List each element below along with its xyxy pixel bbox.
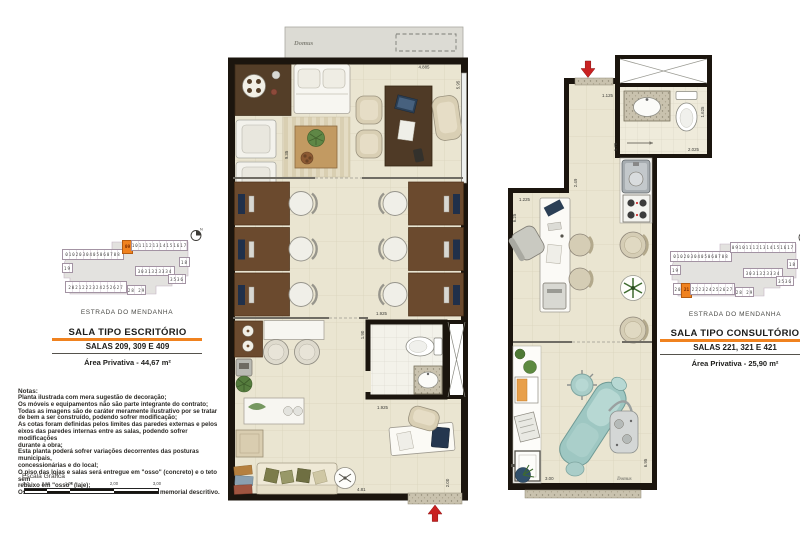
scale-tick-labels: 0,0 0,50 1,00 2,00 3,00 bbox=[24, 481, 159, 486]
armchair bbox=[236, 120, 276, 158]
title-accent-bar bbox=[660, 339, 800, 342]
brand-logo: Domus bbox=[616, 477, 632, 482]
guest-chair bbox=[356, 96, 382, 124]
dim-right-depth: 6.95 bbox=[643, 458, 648, 467]
kitchenette bbox=[620, 158, 652, 223]
magazine-stack bbox=[234, 465, 254, 494]
brochure-page: N 0102030405060708 09 1011121314151617 1… bbox=[0, 0, 800, 538]
window bbox=[462, 73, 467, 183]
dim-left-depth: 9.35 bbox=[284, 150, 289, 159]
entry-arrow-icon bbox=[581, 61, 595, 78]
lounge-sofa bbox=[294, 65, 350, 114]
waiting-armchair bbox=[620, 232, 647, 258]
scale-row-bottom bbox=[25, 491, 158, 493]
round-table bbox=[295, 340, 320, 365]
dim-corridor-depth2: 2.49 bbox=[573, 178, 578, 187]
keyplan-units-28-29: 28 29 bbox=[127, 285, 146, 295]
dim-mid-opening: 1.925 bbox=[376, 311, 388, 316]
scale-tick: 0,0 bbox=[23, 481, 29, 486]
keyplan-consultorio: N 0102030405060708 091011121314151617 18… bbox=[668, 240, 798, 302]
dim-right-depth: 5.95 bbox=[456, 80, 461, 89]
scale-tick: 2,00 bbox=[110, 481, 118, 486]
shelf-cabinet bbox=[515, 377, 538, 403]
north-label: N bbox=[200, 228, 203, 232]
scale-tick: 3,00 bbox=[153, 481, 161, 486]
entry-arrow-icon bbox=[428, 505, 442, 522]
keyplan-units-35-36: 3536 bbox=[168, 274, 186, 284]
toilet bbox=[406, 337, 442, 356]
console-counter bbox=[244, 398, 304, 424]
keyplan-units-35-36: 3536 bbox=[776, 276, 794, 286]
round-table bbox=[264, 340, 289, 365]
guest-chair bbox=[356, 130, 382, 158]
wc-door-opening bbox=[364, 371, 371, 392]
keyplan-escritorio: N 0102030405060708 09 1011121314151617 1… bbox=[60, 238, 190, 300]
plan-subtitle-consultorio: SALAS 221, 321 E 421 bbox=[640, 343, 800, 352]
shaft bbox=[620, 59, 707, 83]
dim-entry-width: 1.125 bbox=[602, 93, 614, 98]
dim-bottom-width: 4.81 bbox=[357, 487, 366, 492]
street-label-right: ESTRADA DO MENDANHA bbox=[660, 311, 800, 318]
brand-logo: Domus bbox=[293, 40, 314, 47]
wc-room bbox=[364, 322, 445, 397]
plan-subtitle-escritorio: SALAS 209, 309 E 409 bbox=[30, 342, 225, 351]
reception-desk bbox=[540, 198, 570, 312]
shaft bbox=[448, 322, 465, 397]
keyplan-units-20-27: 2021222324252627 bbox=[65, 281, 127, 293]
wc-sink bbox=[414, 366, 442, 394]
foot-stool bbox=[566, 462, 584, 476]
dim-wc-width: 2.025 bbox=[688, 147, 700, 152]
coffee-table bbox=[295, 126, 337, 168]
keyplan-unit-18: 18 bbox=[179, 257, 190, 267]
keyplan-units-09-17: 091011121314151617 bbox=[730, 242, 796, 253]
plan-title-consultorio: SALA TIPO CONSULTÓRIO bbox=[640, 328, 800, 339]
entry-threshold bbox=[408, 493, 462, 504]
dim-room-depth: 6.25 bbox=[512, 213, 517, 222]
keyplan-unit-18: 18 bbox=[787, 259, 798, 269]
dim-wc-depth: 1.625 bbox=[700, 106, 705, 118]
dim-top-width: 4.885 bbox=[419, 65, 431, 70]
dim-room-width: 1.225 bbox=[519, 197, 531, 202]
plant bbox=[236, 376, 252, 392]
keyplan-units-22-27: 222324252627 bbox=[690, 283, 735, 295]
dim-corridor-depth: 1.70 bbox=[613, 142, 618, 151]
title-accent-bar bbox=[52, 338, 202, 341]
balcony-threshold bbox=[525, 490, 641, 498]
keyplan-units-28-29: 28 29 bbox=[735, 287, 754, 297]
keyplan-unit-19: 19 bbox=[670, 265, 681, 275]
fan-table bbox=[335, 468, 356, 489]
keyplan-units-01-08: 0102030405060708 bbox=[670, 251, 732, 262]
executive-desk bbox=[385, 86, 432, 166]
coffee-machine bbox=[236, 359, 252, 376]
toilet bbox=[676, 92, 697, 132]
private-area-escritorio: Área Privativa - 44,67 m² bbox=[30, 358, 225, 367]
waiting-plant bbox=[621, 276, 646, 301]
north-compass-icon: N bbox=[188, 226, 204, 242]
entry-threshold bbox=[575, 78, 613, 85]
side-table bbox=[236, 430, 263, 457]
north-compass-icon: N bbox=[796, 228, 800, 244]
dim-wc-opening: 1.925 bbox=[377, 405, 389, 410]
dim-wc-width: 1.90 bbox=[360, 330, 365, 339]
private-area-consultorio: Área Privativa - 25,90 m² bbox=[640, 359, 800, 368]
subtitle-rule bbox=[52, 353, 202, 354]
scale-tick: 0,50 bbox=[42, 481, 50, 486]
keyplan-units-01-08: 0102030405060708 bbox=[62, 249, 124, 260]
stove bbox=[623, 195, 650, 222]
coffee-cabinet bbox=[235, 321, 263, 357]
graphic-scale-bar bbox=[24, 488, 159, 494]
bar-counter bbox=[264, 321, 324, 340]
balcony-strip: Domus bbox=[285, 27, 463, 58]
plan-title-escritorio: SALA TIPO ESCRITÓRIO bbox=[30, 327, 225, 338]
dim-bottom-width: 3.00 bbox=[545, 476, 554, 481]
floorplan-escritorio: Domus bbox=[228, 25, 470, 525]
subtitle-rule bbox=[660, 354, 800, 355]
dim-entry-depth: 2.00 bbox=[445, 478, 450, 487]
keyplan-unit-19: 19 bbox=[62, 263, 73, 273]
keyplan-units-10-17: 1011121314151617 bbox=[131, 240, 188, 251]
scale-tick: 1,00 bbox=[65, 481, 73, 486]
wc-room bbox=[620, 87, 707, 154]
sofa-bottom bbox=[257, 463, 337, 494]
street-label-left: ESTRADA DO MENDANHA bbox=[52, 309, 202, 316]
kitchen-counter bbox=[235, 65, 291, 116]
scale-title: Escala Gráfica bbox=[22, 473, 65, 480]
